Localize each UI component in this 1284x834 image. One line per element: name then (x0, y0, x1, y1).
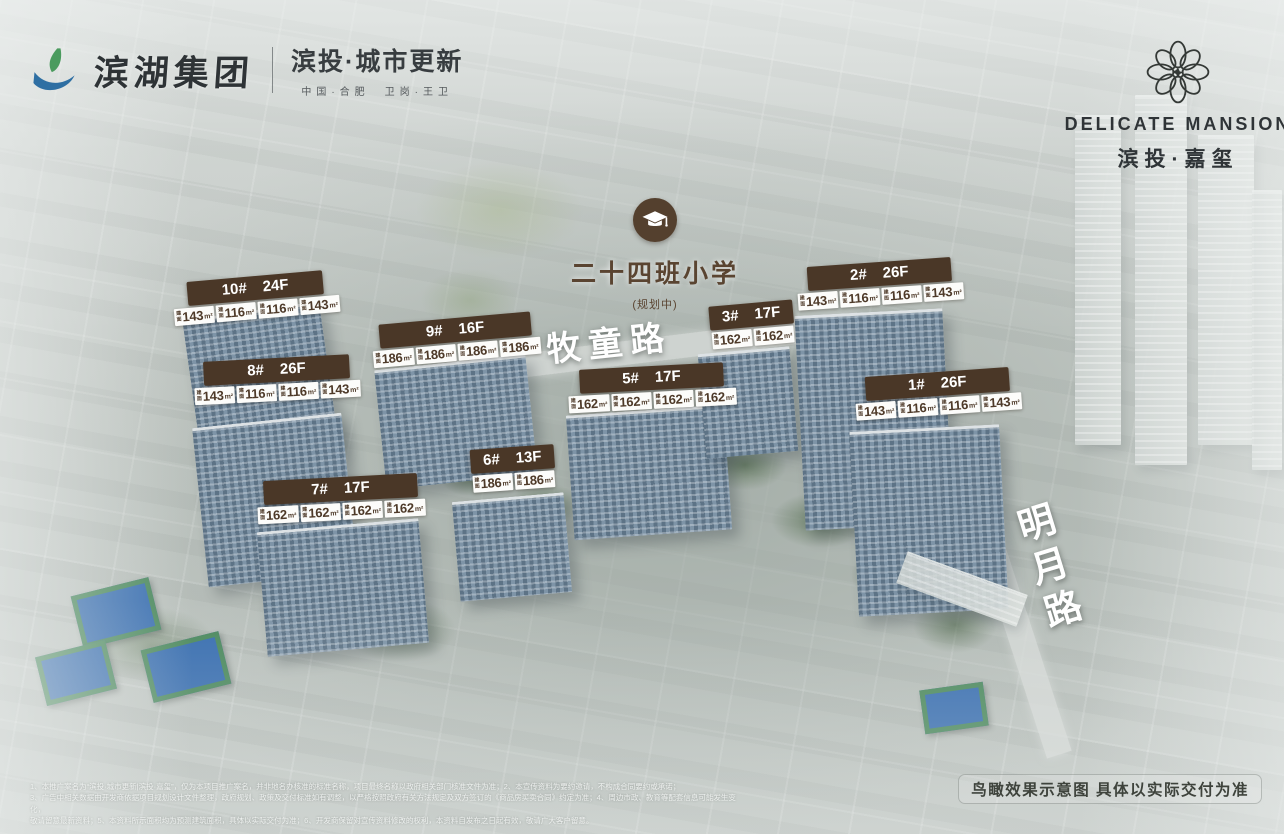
area-unit: m² (288, 512, 297, 519)
background-tower (1198, 135, 1254, 445)
building-floors: 26F (940, 373, 967, 392)
unit-area: 建 面143m² (174, 306, 216, 326)
area-unit: m² (828, 298, 837, 306)
area-value: 116 (906, 401, 927, 415)
building-floors: 17F (654, 367, 681, 385)
area-value: 162 (762, 328, 784, 343)
area-unit: m² (350, 387, 359, 394)
area-value: 162 (661, 392, 682, 406)
disclaimer-line: 敬请留意最新资料；5、本资料所示面积均为预测建筑面积，具体以实际交付为准；6、开… (30, 815, 742, 826)
school-name: 二十四班小学 (571, 254, 739, 290)
area-prefix: 建 面 (260, 510, 266, 521)
building-floors: 13F (515, 448, 542, 467)
area-prefix: 建 面 (942, 401, 948, 412)
area-prefix: 建 面 (502, 343, 508, 354)
project-name-en: DELICATE MANSION (1065, 114, 1284, 135)
area-unit: m² (403, 355, 412, 363)
building-label-7: 7# 17F 建 面162m² 建 面162m² 建 面162m² 建 面162… (255, 473, 427, 525)
campaign-title: 滨投·城市更新 (291, 42, 463, 78)
area-value: 116 (286, 384, 307, 398)
area-value: 116 (224, 305, 245, 320)
area-unit: m² (886, 408, 895, 416)
unit-area: 建 面186m² (500, 337, 542, 357)
building-id: 3# (721, 307, 739, 325)
area-unit: m² (488, 348, 497, 356)
area-prefix: 建 面 (176, 312, 182, 323)
render-note: 鸟瞰效果示意图 具体以实际交付为准 (958, 774, 1262, 804)
area-unit: m² (204, 313, 213, 321)
building-header: 6# 13F (470, 444, 555, 474)
area-unit: m² (869, 295, 878, 303)
area-prefix: 建 面 (260, 305, 266, 316)
unit-area: 建 面143m² (923, 282, 964, 302)
area-unit: m² (969, 402, 978, 410)
area-value: 143 (864, 404, 886, 418)
unit-area: 建 面143m² (797, 291, 838, 311)
building-label-8: 8# 26F 建 面143m² 建 面116m² 建 面116m² 建 面143… (195, 354, 359, 405)
building-id: 9# (425, 322, 443, 340)
unit-area: 建 面116m² (939, 395, 980, 415)
building-id: 2# (849, 266, 867, 284)
unit-area: 建 面143m² (320, 380, 361, 399)
brand-divider (272, 47, 273, 93)
school-badge-circle (633, 198, 677, 242)
unit-area: 建 面162m² (342, 501, 383, 520)
area-prefix: 建 面 (344, 506, 350, 517)
building-floors: 24F (262, 276, 289, 295)
unit-area: 建 面186m² (514, 470, 555, 490)
unit-area: 建 面116m² (898, 398, 939, 418)
building-floors: 26F (882, 263, 909, 282)
aerial-render-poster: 滨湖集团 滨投·城市更新 中国·合肥 卫岗·王卫 DELICATE MANSIO… (0, 0, 1284, 834)
area-unit: m² (308, 389, 317, 396)
area-prefix: 建 面 (474, 479, 480, 490)
area-unit: m² (445, 351, 454, 359)
area-unit: m² (927, 405, 936, 413)
area-unit: m² (683, 397, 692, 404)
background-tower (1252, 190, 1282, 470)
unit-area: 建 面143m² (981, 392, 1022, 412)
area-value: 143 (182, 309, 204, 324)
tower-block-7 (257, 518, 429, 657)
building-floors: 17F (754, 304, 781, 323)
area-unit: m² (741, 336, 750, 344)
area-value: 116 (947, 398, 968, 412)
area-unit: m² (224, 393, 233, 400)
unit-area: 建 面162m² (753, 325, 795, 345)
area-prefix: 建 面 (858, 407, 864, 418)
area-unit: m² (599, 401, 608, 408)
area-unit: m² (911, 292, 920, 300)
binhu-group-logo-icon (28, 44, 80, 96)
area-prefix: 建 面 (571, 399, 577, 410)
developer-name: 滨湖集团 (92, 45, 256, 96)
area-unit: m² (641, 399, 650, 406)
area-value: 143 (202, 389, 223, 403)
area-value: 186 (466, 343, 488, 358)
area-value: 143 (931, 285, 953, 299)
unit-area: 建 面162m² (711, 329, 753, 349)
project-brand-group: DELICATE MANSION 滨投·嘉玺 (1074, 34, 1282, 173)
area-prefix: 建 面 (280, 387, 286, 398)
building-floors: 17F (343, 478, 370, 496)
area-prefix: 建 面 (713, 335, 719, 346)
building-floors: 16F (458, 319, 485, 338)
area-prefix: 建 面 (517, 476, 523, 487)
unit-area: 建 面116m² (257, 298, 298, 318)
area-prefix: 建 面 (698, 393, 704, 404)
area-value: 186 (423, 347, 445, 362)
project-name-cn: 滨投·嘉玺 (1118, 143, 1239, 173)
area-value: 143 (989, 395, 1011, 409)
area-value: 162 (719, 332, 741, 347)
building-id: 7# (311, 481, 329, 499)
area-prefix: 建 面 (756, 332, 762, 343)
area-unit: m² (415, 506, 424, 513)
building-id: 1# (907, 376, 925, 394)
developer-brand-group: 滨湖集团 滨投·城市更新 中国·合肥 卫岗·王卫 (28, 42, 463, 98)
area-unit: m² (545, 477, 554, 485)
unit-area: 建 面186m² (472, 473, 513, 493)
tower-block-6 (452, 492, 572, 601)
area-prefix: 建 面 (900, 404, 906, 415)
campaign-tagline: 中国·合肥 卫岗·王卫 (301, 83, 453, 98)
unit-area: 建 面162m² (258, 505, 299, 524)
area-value: 162 (704, 390, 725, 404)
area-value: 162 (266, 508, 287, 522)
school-status: (规划中) (632, 296, 677, 312)
area-unit: m² (502, 480, 511, 488)
graduation-cap-icon (640, 205, 670, 235)
unit-area: 建 面116m² (216, 302, 257, 322)
area-unit: m² (330, 510, 339, 517)
area-prefix: 建 面 (387, 504, 393, 515)
building-label-5: 5# 17F 建 面162m² 建 面162m² 建 面162m² 建 面162… (571, 362, 733, 413)
planned-school-badge: 二十四班小学 (规划中) (575, 198, 735, 312)
unit-area: 建 面116m² (237, 384, 277, 403)
area-value: 186 (522, 473, 544, 487)
campaign-group: 滨投·城市更新 中国·合肥 卫岗·王卫 (291, 42, 463, 98)
building-id: 5# (622, 370, 640, 388)
flower-logo-icon (1140, 34, 1216, 110)
area-unit: m² (329, 302, 338, 310)
area-unit: m² (530, 344, 539, 352)
unit-area: 建 面186m² (415, 344, 457, 364)
area-value: 162 (619, 395, 640, 409)
area-value: 143 (307, 298, 329, 313)
area-unit: m² (266, 391, 275, 398)
area-value: 116 (245, 387, 266, 401)
area-unit: m² (287, 306, 296, 314)
area-prefix: 建 面 (925, 288, 931, 299)
area-prefix: 建 面 (302, 508, 308, 519)
area-value: 186 (381, 351, 403, 366)
area-prefix: 建 面 (218, 308, 224, 319)
area-value: 162 (393, 501, 414, 515)
area-prefix: 建 面 (375, 354, 381, 365)
area-value: 162 (350, 503, 371, 517)
unit-area: 建 面162m² (300, 503, 341, 522)
area-prefix: 建 面 (460, 347, 466, 358)
area-prefix: 建 面 (417, 350, 423, 361)
unit-area: 建 面186m² (373, 348, 415, 368)
unit-area: 建 面116m² (278, 382, 318, 401)
unit-area: 建 面186m² (457, 340, 499, 360)
area-prefix: 建 面 (884, 291, 890, 302)
area-unit: m² (245, 309, 254, 317)
area-value: 116 (266, 301, 287, 316)
area-value: 116 (889, 288, 910, 302)
unit-area: 建 面143m² (855, 401, 896, 421)
area-value: 186 (508, 340, 530, 355)
area-value: 186 (480, 476, 502, 490)
unit-area: 建 面143m² (299, 295, 341, 315)
unit-area: 建 面143m² (194, 386, 235, 405)
area-unit: m² (784, 333, 793, 341)
area-unit: m² (1011, 399, 1020, 407)
area-prefix: 建 面 (613, 397, 619, 408)
area-prefix: 建 面 (983, 398, 989, 409)
area-unit: m² (372, 508, 381, 515)
building-id: 10# (221, 280, 247, 299)
area-value: 116 (848, 291, 869, 305)
area-prefix: 建 面 (196, 391, 202, 402)
unit-area: 建 面162m² (611, 392, 652, 411)
area-prefix: 建 面 (842, 294, 848, 305)
area-value: 143 (328, 382, 349, 396)
area-unit: m² (953, 289, 962, 297)
area-unit: m² (726, 395, 735, 402)
area-prefix: 建 面 (322, 385, 328, 396)
unit-area: 建 面162m² (653, 390, 694, 409)
legal-disclaimer: 1、本推广案名为“滨投·城市更新|滨投·嘉玺”，仅为本项目推广案名，并非地名办核… (30, 781, 742, 826)
unit-area: 建 面162m² (385, 499, 426, 518)
building-label-3: 3# 17F 建 面162m² 建 面162m² (700, 299, 803, 351)
area-value: 162 (308, 506, 329, 520)
disclaimer-line: 3、广告中相关数据由开发商依据项目规划设计文件整理，政府规划、政策及交付标准如有… (30, 792, 742, 815)
sports-court (919, 682, 989, 734)
area-value: 162 (577, 397, 598, 411)
unit-area: 建 面116m² (840, 288, 881, 308)
area-prefix: 建 面 (239, 389, 245, 400)
unit-area: 建 面162m² (569, 394, 610, 413)
unit-area: 建 面116m² (881, 285, 922, 305)
area-prefix: 建 面 (301, 301, 307, 312)
disclaimer-line: 1、本推广案名为“滨投·城市更新|滨投·嘉玺”，仅为本项目推广案名，并非地名办核… (30, 781, 742, 792)
building-label-6: 6# 13F 建 面186m² 建 面186m² (462, 444, 565, 494)
unit-area: 建 面162m² (696, 388, 737, 407)
area-value: 143 (806, 294, 828, 308)
building-id: 6# (482, 451, 500, 469)
building-floors: 26F (279, 359, 306, 377)
area-prefix: 建 面 (655, 395, 661, 406)
building-id: 8# (247, 362, 265, 380)
